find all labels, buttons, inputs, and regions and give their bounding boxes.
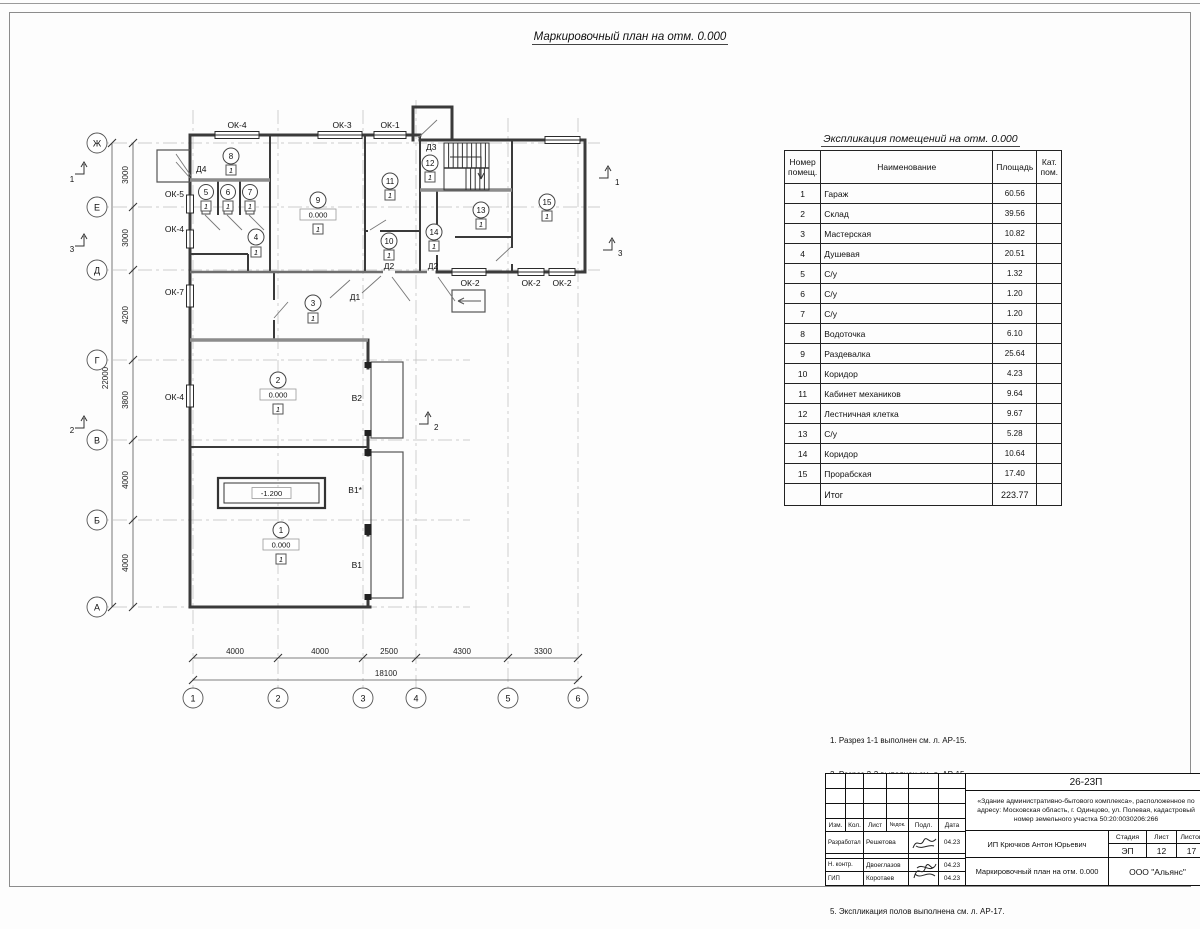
- stamp-date: 04.23: [939, 859, 966, 872]
- svg-text:Д: Д: [94, 266, 100, 276]
- stamp-col-podp: Подл.: [909, 819, 939, 832]
- note-line: 5. Экспликация полов выполнена см. л. АР…: [830, 906, 1015, 917]
- table-row: 9 Раздевалка 25.64: [785, 344, 1062, 364]
- stamp-cell: [846, 804, 864, 819]
- room-name: Раздевалка: [821, 344, 993, 364]
- room-area: 25.64: [993, 344, 1037, 364]
- room-number: 3: [785, 224, 821, 244]
- stamp-cell: [939, 774, 966, 789]
- svg-text:В: В: [94, 436, 100, 446]
- svg-text:Е: Е: [94, 203, 100, 213]
- svg-text:4000: 4000: [226, 647, 244, 656]
- svg-text:Д2: Д2: [384, 261, 395, 271]
- svg-text:Д4: Д4: [196, 164, 207, 174]
- stamp-name: Решетова: [864, 832, 909, 854]
- stamp-cell: [826, 789, 846, 804]
- svg-text:1: 1: [70, 175, 75, 184]
- svg-text:В2: В2: [352, 393, 363, 403]
- room-number: 15: [785, 464, 821, 484]
- svg-text:0.000: 0.000: [309, 211, 328, 220]
- room-name: Склад: [821, 204, 993, 224]
- room-name: Лестничная клетка: [821, 404, 993, 424]
- room-category: [1037, 284, 1062, 304]
- svg-text:0.000: 0.000: [272, 541, 291, 550]
- room-area: 6.10: [993, 324, 1037, 344]
- room-number: 10: [785, 364, 821, 384]
- svg-text:ОК-1: ОК-1: [380, 120, 399, 130]
- svg-text:ОК-2: ОК-2: [552, 278, 571, 288]
- pit-elevation: -1.200: [252, 488, 291, 499]
- svg-text:4: 4: [413, 694, 418, 704]
- room-category: [1037, 324, 1062, 344]
- svg-text:7: 7: [248, 188, 253, 197]
- room-category: [1037, 384, 1062, 404]
- room-area: 1.32: [993, 264, 1037, 284]
- stamp-name: Коротаев: [864, 872, 909, 885]
- table-row: 13 С/у 5.28: [785, 424, 1062, 444]
- room-marker-3: 3 1: [305, 295, 321, 323]
- room-number: 5: [785, 264, 821, 284]
- table-row: 1 Гараж 60.56: [785, 184, 1062, 204]
- room-number: 14: [785, 444, 821, 464]
- svg-text:1: 1: [545, 212, 549, 221]
- svg-text:2: 2: [70, 426, 75, 435]
- svg-text:4000: 4000: [121, 554, 130, 572]
- svg-text:Ж: Ж: [93, 139, 102, 149]
- svg-text:5: 5: [505, 694, 510, 704]
- svg-text:1: 1: [248, 202, 252, 211]
- col-header-name: Наименование: [821, 151, 993, 184]
- room-name: Душевая: [821, 244, 993, 264]
- room-category: [1037, 244, 1062, 264]
- room-category: [1037, 464, 1062, 484]
- stamp-col-kol: Кол.: [846, 819, 864, 832]
- stamp-cell: [909, 774, 939, 789]
- stamp-sheets-value: 17: [1177, 844, 1200, 858]
- svg-text:1: 1: [388, 191, 392, 200]
- table-row: 15 Прорабская 17.40: [785, 464, 1062, 484]
- svg-text:0.000: 0.000: [269, 391, 288, 400]
- room-marker-14: 14 1: [426, 224, 442, 251]
- stamp-col-ndok: №док.: [887, 819, 909, 832]
- room-number: 12: [785, 404, 821, 424]
- table-total-row: Итог 223.77: [785, 484, 1062, 506]
- stamp-role: Н. контр.: [826, 859, 864, 872]
- room-marker-13: 13 1: [473, 202, 489, 229]
- room-category: [1037, 304, 1062, 324]
- room-area: 20.51: [993, 244, 1037, 264]
- stamp-cell: [909, 789, 939, 804]
- room-name: С/у: [821, 424, 993, 444]
- stamp-role: Разработал: [826, 832, 864, 854]
- svg-text:1: 1: [276, 405, 280, 414]
- room-name: Водоточка: [821, 324, 993, 344]
- col-header-cat: Кат. пом.: [1037, 151, 1062, 184]
- stamp-company: ООО "Альянс": [1109, 858, 1200, 885]
- svg-text:А: А: [94, 603, 100, 613]
- table-row: 6 С/у 1.20: [785, 284, 1062, 304]
- room-marker-8: 8 1: [223, 148, 239, 175]
- svg-text:Д2: Д2: [428, 261, 439, 271]
- stamp-col-data: Дата: [939, 819, 966, 832]
- title-block: Изм. Кол. Лист №док. Подл. Дата Разработ…: [825, 773, 1200, 886]
- room-name: Мастерская: [821, 224, 993, 244]
- room-category: [1037, 444, 1062, 464]
- svg-text:1: 1: [279, 526, 284, 535]
- section-marks: [75, 162, 615, 428]
- svg-text:3: 3: [70, 245, 75, 254]
- total-num-empty: [785, 484, 821, 506]
- dimensions-layer: [108, 139, 582, 684]
- table-row: 10 Коридор 4.23: [785, 364, 1062, 384]
- svg-text:1: 1: [279, 555, 283, 564]
- table-title: Экспликация помещений на отм. 0.000: [783, 133, 1058, 145]
- room-category: [1037, 404, 1062, 424]
- svg-text:1: 1: [615, 178, 620, 187]
- stamp-sheet-label: Лист: [1147, 831, 1177, 844]
- svg-text:3: 3: [360, 694, 365, 704]
- svg-text:12: 12: [426, 159, 435, 168]
- svg-text:ОК-4: ОК-4: [165, 392, 184, 402]
- stamp-cell: [864, 804, 887, 819]
- room-marker-2: 2 0.000 1: [260, 372, 296, 414]
- room-number: 6: [785, 284, 821, 304]
- room-category: [1037, 264, 1062, 284]
- stairs: [444, 143, 489, 190]
- room-marker-6: 6 1: [221, 185, 236, 212]
- stamp-stage-label: Стадия: [1109, 831, 1147, 844]
- room-area: 60.56: [993, 184, 1037, 204]
- svg-text:5: 5: [204, 188, 209, 197]
- stamp-cell: [826, 804, 846, 819]
- room-category: [1037, 204, 1062, 224]
- room-area: 9.64: [993, 384, 1037, 404]
- svg-text:10: 10: [385, 237, 394, 246]
- svg-text:1: 1: [479, 220, 483, 229]
- room-area: 1.20: [993, 284, 1037, 304]
- room-name: Коридор: [821, 444, 993, 464]
- room-name: С/у: [821, 264, 993, 284]
- svg-text:Б: Б: [94, 516, 100, 526]
- stamp-cell: [846, 774, 864, 789]
- table-row: 7 С/у 1.20: [785, 304, 1062, 324]
- svg-text:1: 1: [204, 202, 208, 211]
- room-marker-15: 15 1: [539, 194, 555, 221]
- table-header-row: Номер помещ. Наименование Площадь Кат. п…: [785, 151, 1062, 184]
- table-row: 2 Склад 39.56: [785, 204, 1062, 224]
- svg-text:ОК-2: ОК-2: [460, 278, 479, 288]
- stamp-name: Двоеглазов: [864, 859, 909, 872]
- stamp-col-list: Лист: [864, 819, 887, 832]
- table-row: 11 Кабинет механиков 9.64: [785, 384, 1062, 404]
- table-row: 12 Лестничная клетка 9.67: [785, 404, 1062, 424]
- svg-text:ОК-5: ОК-5: [165, 189, 184, 199]
- stamp-client: ИП Крючков Антон Юрьевич: [966, 831, 1109, 858]
- svg-text:Д3: Д3: [426, 142, 437, 152]
- room-name: С/у: [821, 284, 993, 304]
- note-line: 1. Разрез 1-1 выполнен см. л. АР-15.: [830, 735, 1015, 746]
- svg-text:3: 3: [618, 249, 623, 258]
- room-marker-1: 1 0.000 1: [263, 522, 299, 564]
- svg-text:2: 2: [434, 423, 439, 432]
- svg-text:1: 1: [428, 173, 432, 182]
- total-label: Итог: [821, 484, 993, 506]
- svg-text:4000: 4000: [121, 471, 130, 489]
- svg-text:Г: Г: [95, 356, 100, 366]
- room-name: Гараж: [821, 184, 993, 204]
- room-number: 1: [785, 184, 821, 204]
- room-area: 4.23: [993, 364, 1037, 384]
- gate-labels: В2 В1* В1: [348, 393, 362, 570]
- svg-text:3800: 3800: [121, 391, 130, 409]
- svg-text:13: 13: [477, 206, 486, 215]
- stamp-cell: [887, 789, 909, 804]
- svg-text:11: 11: [386, 177, 395, 186]
- room-category: [1037, 364, 1062, 384]
- room-name: Кабинет механиков: [821, 384, 993, 404]
- stamp-cell: [887, 774, 909, 789]
- svg-text:18100: 18100: [375, 669, 398, 678]
- svg-text:14: 14: [430, 228, 439, 237]
- stamp-cell: [864, 789, 887, 804]
- room-category: [1037, 224, 1062, 244]
- drawing-sheet: { "sheet": { "title": "Маркировочный пла…: [0, 0, 1200, 900]
- room-number: 11: [785, 384, 821, 404]
- svg-text:1: 1: [229, 166, 233, 175]
- dimension-texts: 3000 3000 4200 3800 4000 4000 22000 4000…: [101, 166, 552, 678]
- svg-text:1: 1: [311, 314, 315, 323]
- svg-text:ОК-4: ОК-4: [227, 120, 246, 130]
- room-number: 8: [785, 324, 821, 344]
- room-marker-4: 4 1: [248, 229, 264, 257]
- col-header-area: Площадь: [993, 151, 1037, 184]
- svg-text:ОК-2: ОК-2: [521, 278, 540, 288]
- stamp-date: 04.23: [939, 832, 966, 854]
- svg-text:Д1: Д1: [350, 292, 361, 302]
- room-marker-10: 10 1: [381, 233, 397, 260]
- svg-text:ОК-7: ОК-7: [165, 287, 184, 297]
- room-number: 2: [785, 204, 821, 224]
- svg-text:4: 4: [254, 233, 259, 242]
- svg-text:22000: 22000: [101, 366, 110, 389]
- svg-text:1: 1: [316, 225, 320, 234]
- svg-text:ОК-3: ОК-3: [332, 120, 351, 130]
- signature: [910, 858, 938, 884]
- svg-text:1: 1: [254, 248, 258, 257]
- stamp-sheet-value: 12: [1147, 844, 1177, 858]
- stamp-code: 26-23П: [966, 774, 1200, 791]
- svg-text:3300: 3300: [534, 647, 552, 656]
- svg-text:3: 3: [311, 299, 316, 308]
- rooms-table: Номер помещ. Наименование Площадь Кат. п…: [784, 150, 1062, 506]
- room-name: С/у: [821, 304, 993, 324]
- stamp-cell: [939, 789, 966, 804]
- room-area: 39.56: [993, 204, 1037, 224]
- table-row: 5 С/у 1.32: [785, 264, 1062, 284]
- stamp-cell: [939, 804, 966, 819]
- svg-text:3000: 3000: [121, 229, 130, 247]
- room-marker-12: 12 1: [422, 155, 438, 182]
- table-row: 8 Водоточка 6.10: [785, 324, 1062, 344]
- stamp-cell: [909, 804, 939, 819]
- svg-text:8: 8: [229, 152, 234, 161]
- room-markers: 1 0.000 1 2 0.000 1 9 0.000 1 3: [199, 148, 556, 564]
- room-area: 10.82: [993, 224, 1037, 244]
- svg-text:6: 6: [226, 188, 231, 197]
- col-header-num: Номер помещ.: [785, 151, 821, 184]
- stamp-date: 04.23: [939, 872, 966, 885]
- room-area: 10.64: [993, 444, 1037, 464]
- svg-text:2500: 2500: [380, 647, 398, 656]
- gray-walls: [190, 180, 512, 340]
- svg-text:2: 2: [275, 694, 280, 704]
- svg-text:1: 1: [432, 242, 436, 251]
- signature: [910, 834, 938, 852]
- svg-text:1: 1: [226, 202, 230, 211]
- stamp-cell: [887, 804, 909, 819]
- room-category: [1037, 184, 1062, 204]
- stamp-col-izm: Изм.: [826, 819, 846, 832]
- svg-text:1: 1: [387, 251, 391, 260]
- svg-text:3000: 3000: [121, 166, 130, 184]
- svg-text:В1*: В1*: [348, 485, 362, 495]
- stamp-stage-value: ЭП: [1109, 844, 1147, 858]
- room-category: [1037, 424, 1062, 444]
- room-marker-7: 7 1: [243, 185, 258, 212]
- table-row: 3 Мастерская 10.82: [785, 224, 1062, 244]
- room-area: 9.67: [993, 404, 1037, 424]
- svg-text:4200: 4200: [121, 306, 130, 324]
- stamp-cell: [846, 789, 864, 804]
- room-number: 7: [785, 304, 821, 324]
- room-marker-9: 9 0.000 1: [300, 192, 336, 234]
- room-number: 9: [785, 344, 821, 364]
- svg-text:9: 9: [316, 196, 321, 205]
- room-area: 1.20: [993, 304, 1037, 324]
- room-number: 4: [785, 244, 821, 264]
- stamp-doc-title: Маркировочный план на отм. 0.000: [966, 858, 1109, 885]
- stamp-sheets-label: Листов: [1177, 831, 1200, 844]
- room-number: 13: [785, 424, 821, 444]
- room-area: 5.28: [993, 424, 1037, 444]
- svg-text:-1.200: -1.200: [261, 489, 282, 498]
- svg-text:2: 2: [276, 376, 281, 385]
- stamp-object: «Здание административно-бытового комплек…: [966, 791, 1200, 831]
- table-row: 4 Душевая 20.51: [785, 244, 1062, 264]
- table-row: 14 Коридор 10.64: [785, 444, 1062, 464]
- room-name: Прорабская: [821, 464, 993, 484]
- svg-text:В1: В1: [352, 560, 363, 570]
- svg-text:ОК-4: ОК-4: [165, 224, 184, 234]
- room-area: 17.40: [993, 464, 1037, 484]
- room-category: [1037, 344, 1062, 364]
- svg-text:15: 15: [543, 198, 552, 207]
- svg-text:1: 1: [190, 694, 195, 704]
- svg-text:4300: 4300: [453, 647, 471, 656]
- room-name: Коридор: [821, 364, 993, 384]
- section-labels: 1 3 2 1 3 2: [70, 175, 623, 435]
- total-category-empty: [1037, 484, 1062, 506]
- total-area: 223.77: [993, 484, 1037, 506]
- svg-text:6: 6: [575, 694, 580, 704]
- stamp-cell: [864, 774, 887, 789]
- stamp-cell: [826, 774, 846, 789]
- stamp-role: ГИП: [826, 872, 864, 885]
- room-marker-5: 5 1: [199, 185, 214, 212]
- room-marker-11: 11 1: [382, 173, 398, 200]
- svg-text:4000: 4000: [311, 647, 329, 656]
